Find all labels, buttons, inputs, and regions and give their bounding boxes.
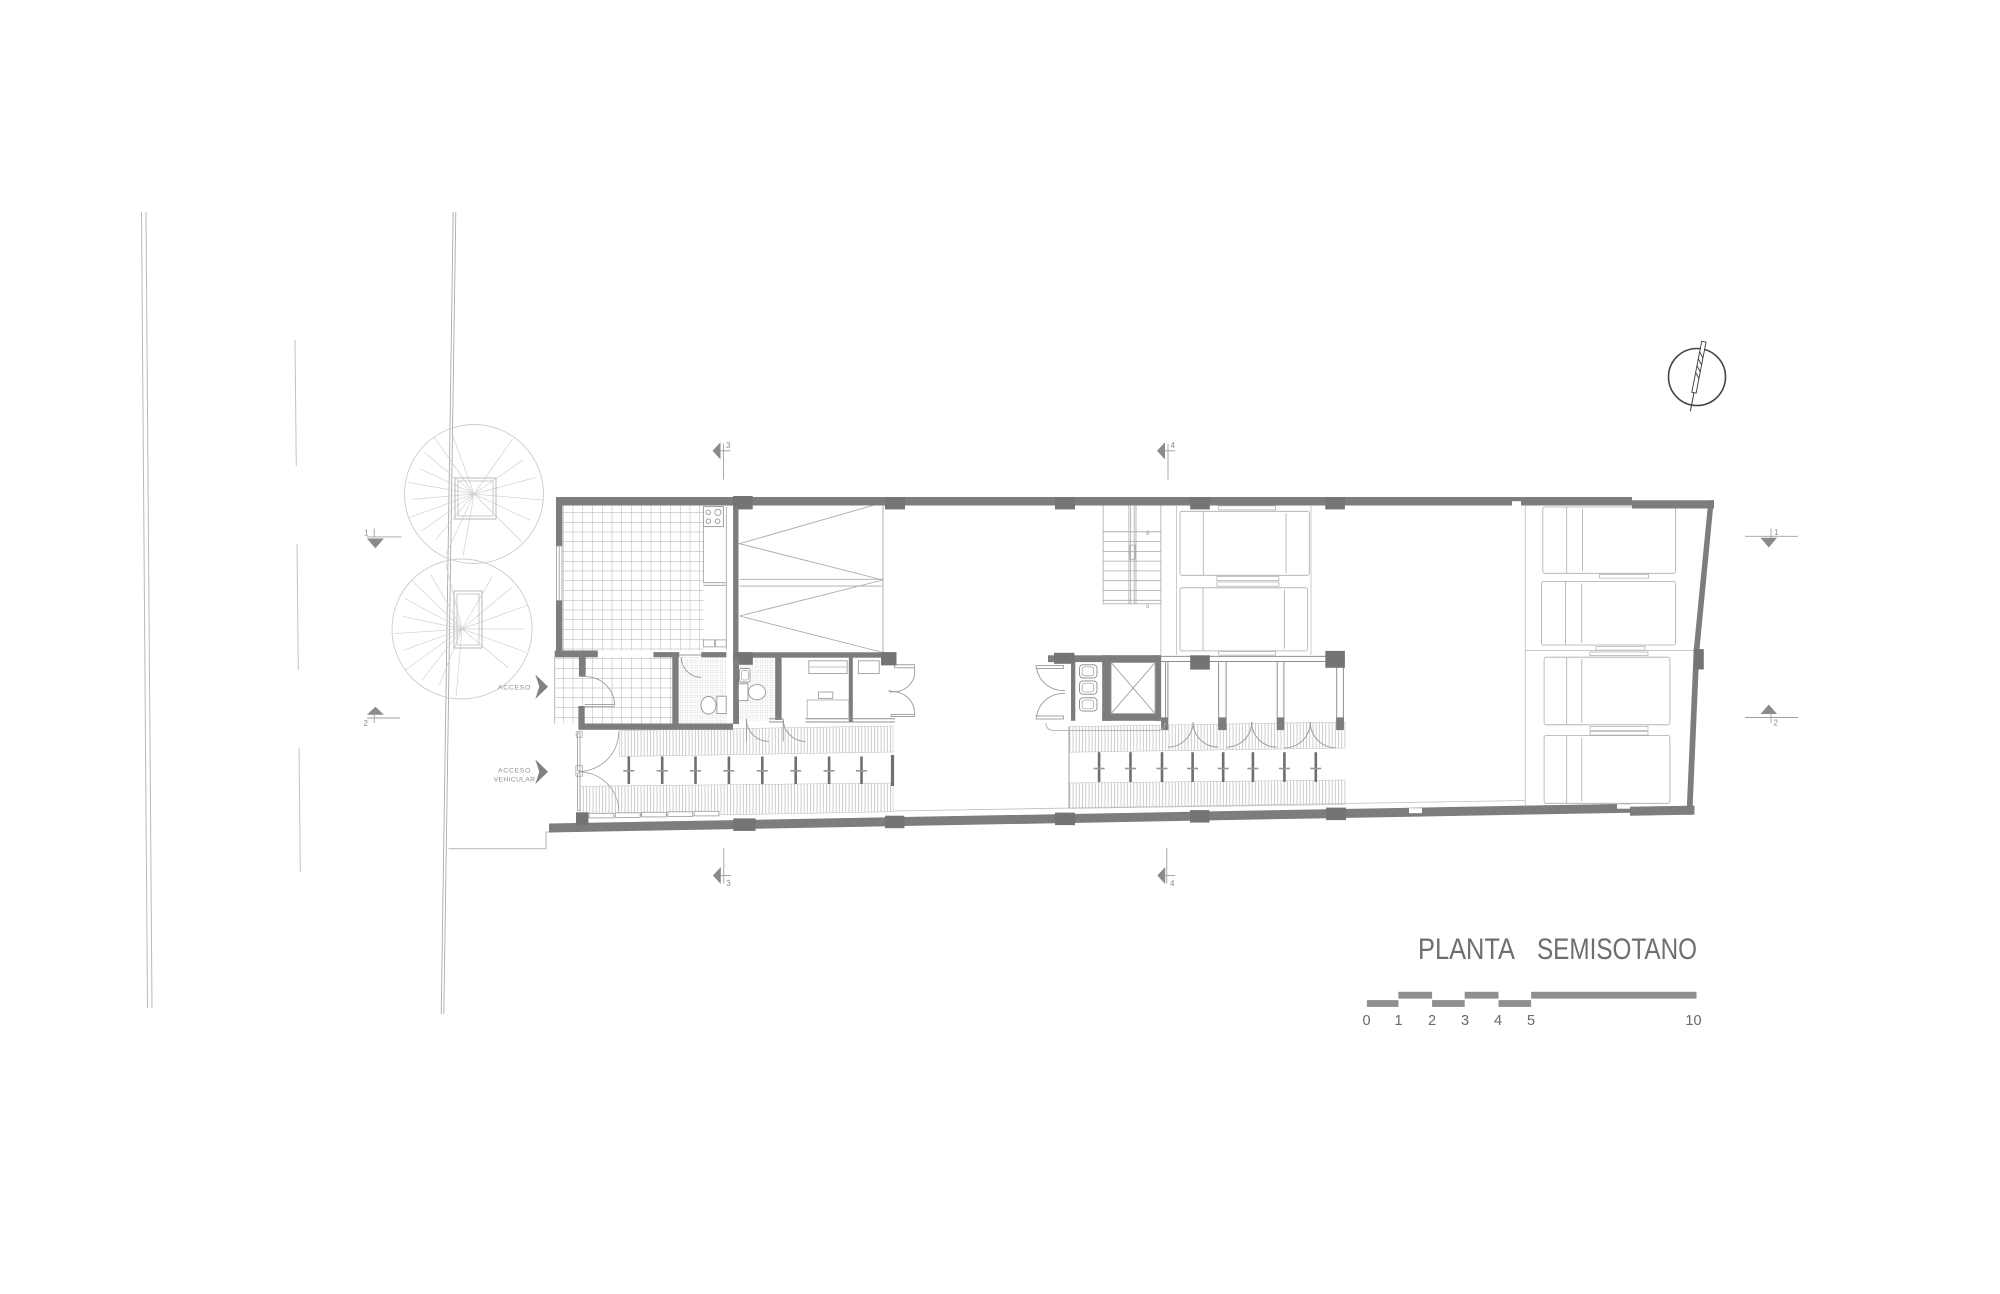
svg-text:SEMISOTANO: SEMISOTANO xyxy=(1537,933,1697,966)
svg-text:3: 3 xyxy=(1461,1013,1469,1029)
svg-text:2: 2 xyxy=(1428,1013,1436,1029)
svg-text:1: 1 xyxy=(1774,528,1779,537)
svg-text:PLANTA: PLANTA xyxy=(1418,933,1515,966)
svg-text:4: 4 xyxy=(1170,879,1175,888)
svg-text:4: 4 xyxy=(1494,1013,1502,1029)
svg-text:1: 1 xyxy=(1394,1013,1402,1029)
svg-text:2: 2 xyxy=(364,719,369,728)
svg-text:3: 3 xyxy=(726,441,731,450)
svg-text:0: 0 xyxy=(1362,1013,1370,1029)
svg-text:10: 10 xyxy=(1685,1013,1701,1029)
svg-text:ACCESO: ACCESO xyxy=(498,684,531,691)
svg-text:5: 5 xyxy=(1527,1013,1535,1029)
svg-text:VEHICULAR: VEHICULAR xyxy=(494,776,536,783)
svg-text:3: 3 xyxy=(726,879,731,888)
svg-text:ACCESO: ACCESO xyxy=(498,767,531,774)
svg-text:1: 1 xyxy=(364,529,369,538)
svg-text:2: 2 xyxy=(1774,719,1779,728)
svg-text:4: 4 xyxy=(1171,441,1176,450)
